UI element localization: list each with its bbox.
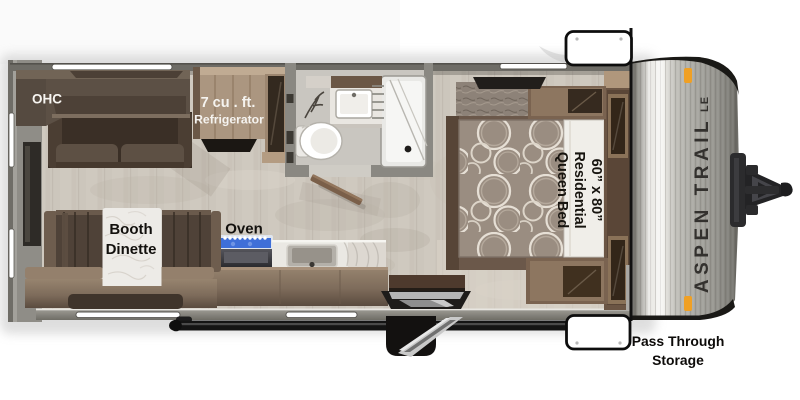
svg-text:LE: LE	[699, 96, 711, 112]
svg-text:Oven: Oven	[225, 221, 263, 238]
svg-text:Pass Through: Pass Through	[632, 333, 725, 349]
svg-text:Residential: Residential	[571, 151, 587, 228]
svg-text:Queen Bed: Queen Bed	[554, 152, 570, 229]
svg-text:60” x 80”: 60” x 80”	[588, 159, 604, 222]
svg-text:ASPEN TRAIL: ASPEN TRAIL	[692, 117, 713, 293]
svg-text:OHC: OHC	[32, 92, 62, 107]
svg-text:Dinette: Dinette	[106, 241, 157, 258]
svg-text:Refrigerator: Refrigerator	[194, 113, 264, 127]
svg-text:Storage: Storage	[652, 352, 704, 368]
svg-text:Booth: Booth	[109, 221, 152, 238]
svg-text:7 cu . ft.: 7 cu . ft.	[201, 95, 256, 111]
